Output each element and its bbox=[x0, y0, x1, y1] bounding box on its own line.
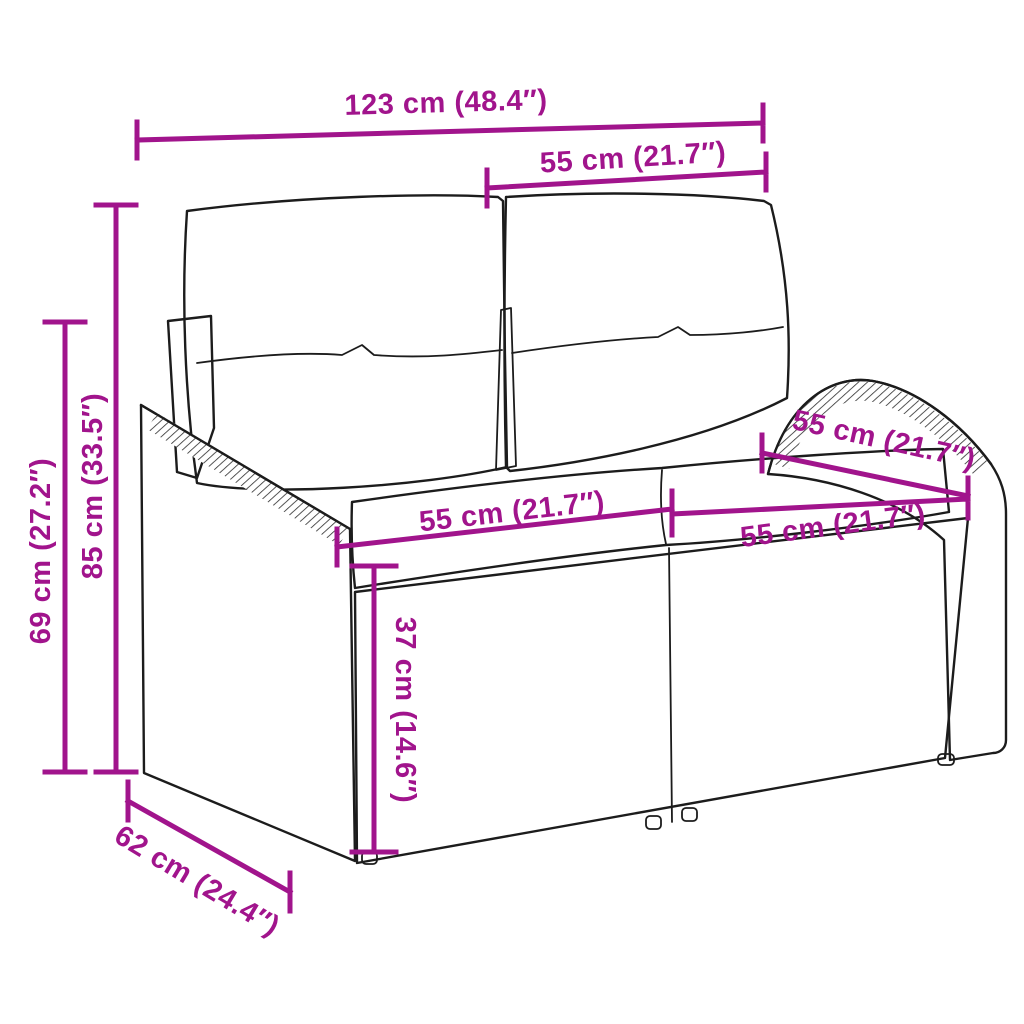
dimension-label-arm-height: 69 cm (27.2″) bbox=[25, 458, 57, 644]
dimension-label-seat-height: 37 cm (14.6″) bbox=[389, 617, 421, 803]
sofa-dimension-drawing: 123 cm (48.4″) 55 cm (21.7″) 85 cm (33.5… bbox=[0, 0, 1024, 1024]
dimension-label-overall-width: 123 cm (48.4″) bbox=[344, 84, 548, 122]
dimension-diagram: 123 cm (48.4″) 55 cm (21.7″) 85 cm (33.5… bbox=[0, 0, 1024, 1024]
dimension-label-total-height: 85 cm (33.5″) bbox=[77, 393, 109, 579]
